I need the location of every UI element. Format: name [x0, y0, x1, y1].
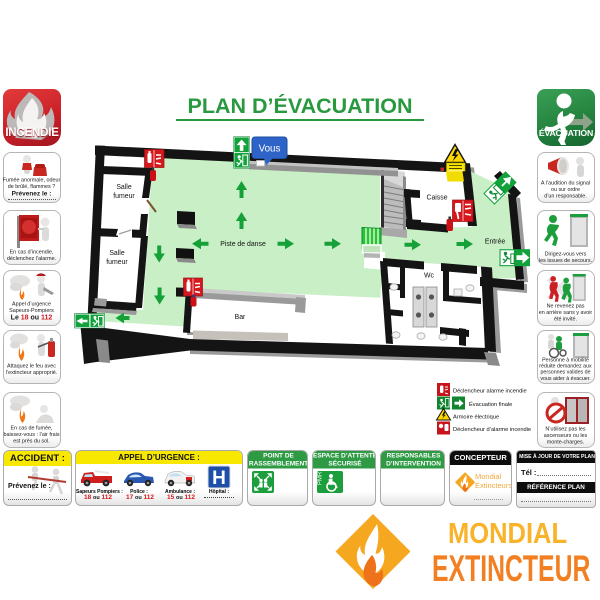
svg-text:fumeur: fumeur	[113, 193, 135, 200]
svg-text:Piste de danse: Piste de danse	[220, 241, 266, 248]
svg-text:PMR: PMR	[318, 471, 324, 485]
svg-text:Bar: Bar	[235, 314, 246, 321]
svg-text:H: H	[212, 468, 226, 489]
svg-text:Salle: Salle	[109, 250, 124, 257]
svg-text:Entrée: Entrée	[485, 239, 505, 246]
svg-text:fumeur: fumeur	[106, 259, 128, 266]
svg-text:Vous: Vous	[259, 144, 281, 155]
svg-text:Évacuation finale: Évacuation finale	[469, 401, 512, 408]
svg-text:Déclencheur alarme incendie: Déclencheur alarme incendie	[453, 389, 527, 395]
svg-text:Wc: Wc	[424, 273, 435, 280]
svg-text:Salle: Salle	[116, 184, 131, 191]
svg-text:Déclencheur d’alarme incendie: Déclencheur d’alarme incendie	[453, 427, 531, 433]
svg-text:Armoire électrique: Armoire électrique	[453, 415, 499, 421]
svg-text:Caisse: Caisse	[426, 195, 447, 202]
